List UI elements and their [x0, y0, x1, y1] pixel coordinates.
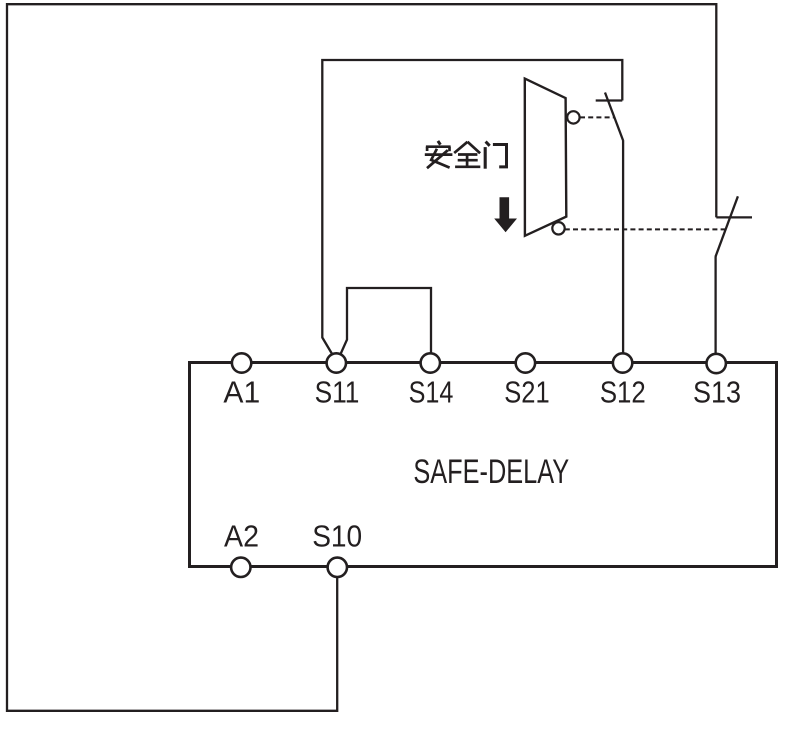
svg-text:S14: S14	[409, 375, 454, 410]
svg-text:S13: S13	[693, 375, 741, 410]
svg-text:S11: S11	[315, 375, 360, 410]
svg-text:SAFE-DELAY: SAFE-DELAY	[413, 453, 569, 491]
svg-text:S12: S12	[600, 375, 646, 410]
svg-text:S21: S21	[504, 375, 549, 410]
svg-text:S10: S10	[312, 519, 362, 554]
svg-text:A2: A2	[224, 519, 259, 554]
svg-text:A1: A1	[223, 375, 260, 410]
